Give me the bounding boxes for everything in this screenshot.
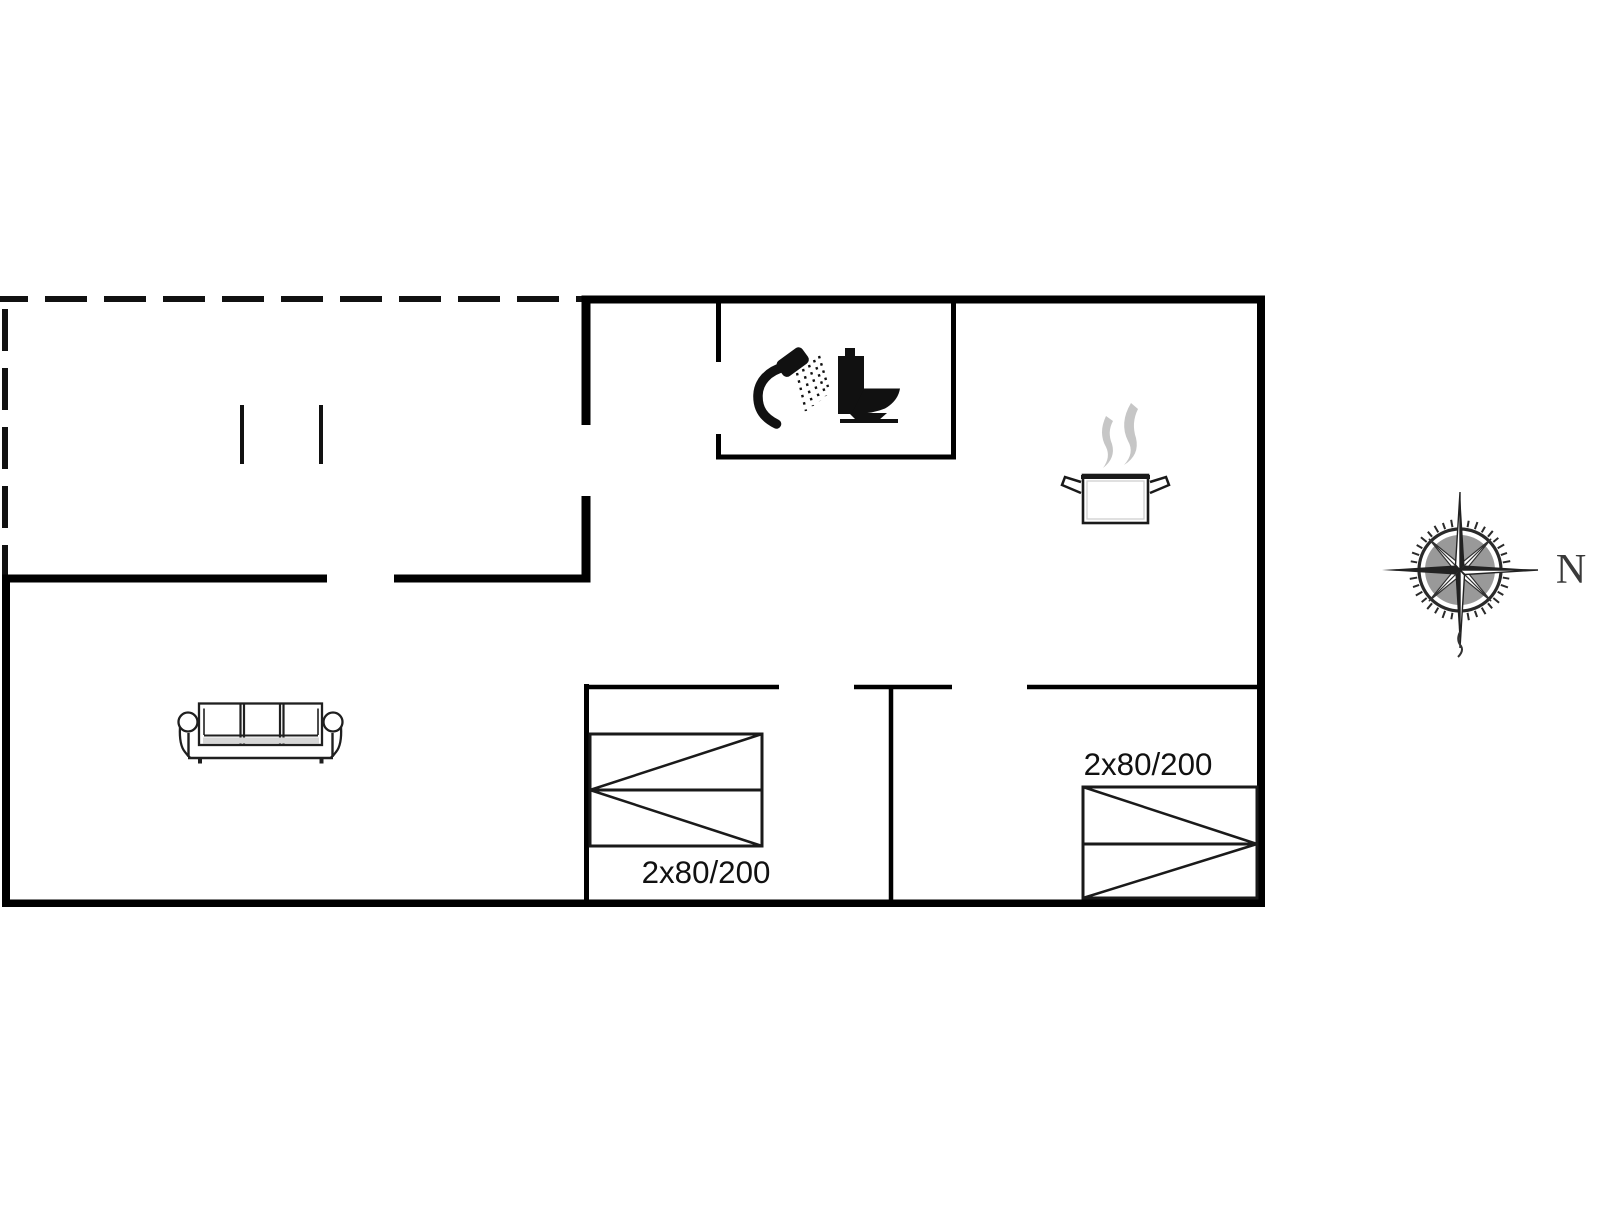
svg-text:N: N: [1556, 547, 1586, 593]
svg-text:2x80/200: 2x80/200: [1084, 747, 1213, 782]
svg-text:2x80/200: 2x80/200: [642, 855, 771, 890]
